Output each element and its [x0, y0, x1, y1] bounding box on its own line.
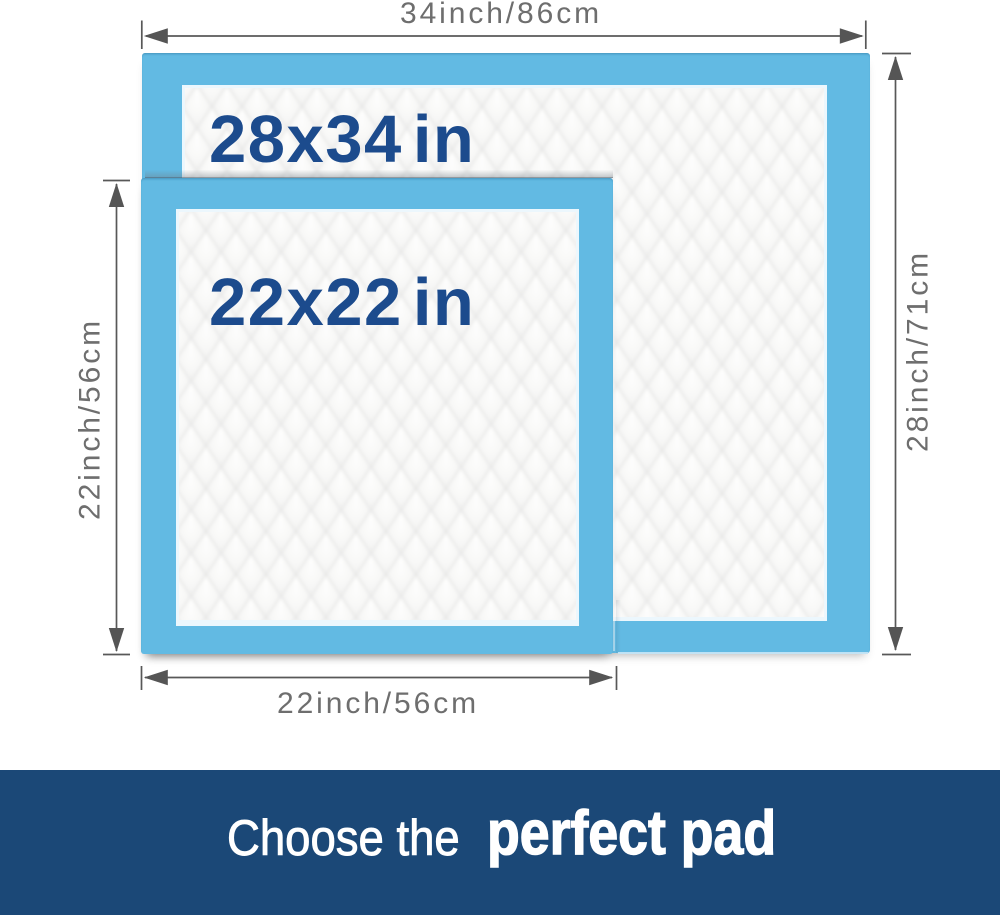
svg-text:28inch/71cm: 28inch/71cm: [902, 250, 935, 452]
svg-text:22inch/56cm: 22inch/56cm: [74, 318, 107, 520]
